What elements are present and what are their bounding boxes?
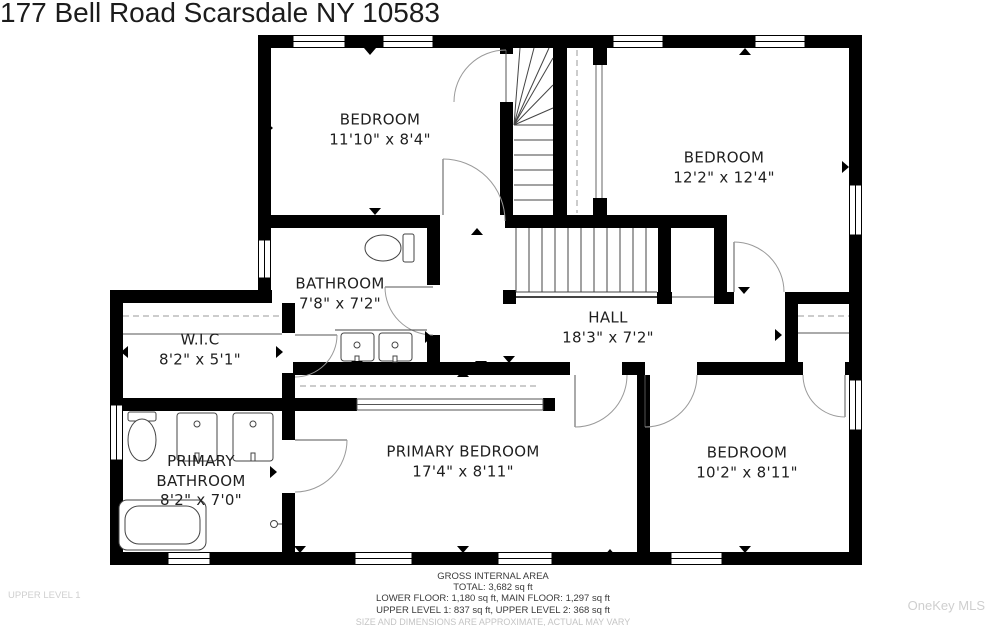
window [259, 240, 271, 278]
window [111, 405, 123, 460]
toilet-icon [365, 234, 414, 262]
winder-staircase [514, 48, 553, 200]
room-label-bedroom-1: BEDROOM 11'10" x 8'4" [295, 111, 465, 150]
window [498, 553, 552, 565]
room-label-wic: W.I.C 8'2" x 5'1" [130, 331, 270, 370]
window [383, 36, 433, 48]
door-primary-bedroom [575, 375, 627, 427]
window [850, 380, 862, 430]
room-label-bedroom-3: BEDROOM 10'2" x 8'11" [662, 444, 832, 483]
room-label-hall: HALL 18'3" x 7'2" [528, 309, 688, 348]
floorplan-page: 177 Bell Road Scarsdale NY 10583 [0, 0, 991, 626]
floor-areas-2: UPPER LEVEL 1: 837 sq ft, UPPER LEVEL 2:… [243, 605, 743, 616]
door-bedroom-1-b [443, 159, 505, 221]
window [671, 553, 722, 565]
stairwell-corridor [577, 50, 602, 213]
door-bedroom-1-a [454, 50, 506, 102]
hall-closet-rod [798, 316, 849, 333]
level-watermark: UPPER LEVEL 1 [8, 590, 81, 601]
sink-icon [335, 330, 427, 362]
total-area: TOTAL: 3,682 sq ft [243, 582, 743, 593]
room-label-primary-bedroom: PRIMARY BEDROOM 17'4" x 8'11" [313, 443, 613, 482]
main-staircase [516, 228, 657, 297]
floor-areas-1: LOWER FLOOR: 1,180 sq ft, MAIN FLOOR: 1,… [243, 593, 743, 604]
brand-watermark: OneKey MLS [908, 598, 985, 613]
floor-plan-svg [0, 0, 991, 626]
window [168, 553, 210, 565]
room-label-bathroom: BATHROOM 7'8" x 7'2" [260, 275, 420, 314]
shower-fixture-icon [271, 521, 283, 528]
window [355, 553, 412, 565]
disclaimer-text: SIZE AND DIMENSIONS ARE APPROXIMATE, ACT… [243, 617, 743, 626]
door-bedroom-3 [645, 375, 697, 427]
area-summary: GROSS INTERNAL AREA TOTAL: 3,682 sq ft L… [243, 571, 743, 626]
window [613, 36, 663, 48]
window [293, 36, 345, 48]
door-bedroom-2 [734, 242, 784, 292]
window [755, 36, 805, 48]
gross-internal-area-heading: GROSS INTERNAL AREA [243, 571, 743, 582]
room-label-primary-bathroom: PRIMARY BATHROOM 8'2" x 7'0" [139, 452, 264, 511]
stairs-layer [514, 48, 657, 297]
window [850, 185, 862, 235]
room-label-bedroom-2: BEDROOM 12'2" x 12'4" [639, 149, 809, 188]
door-bedroom-3-closet [803, 375, 845, 417]
